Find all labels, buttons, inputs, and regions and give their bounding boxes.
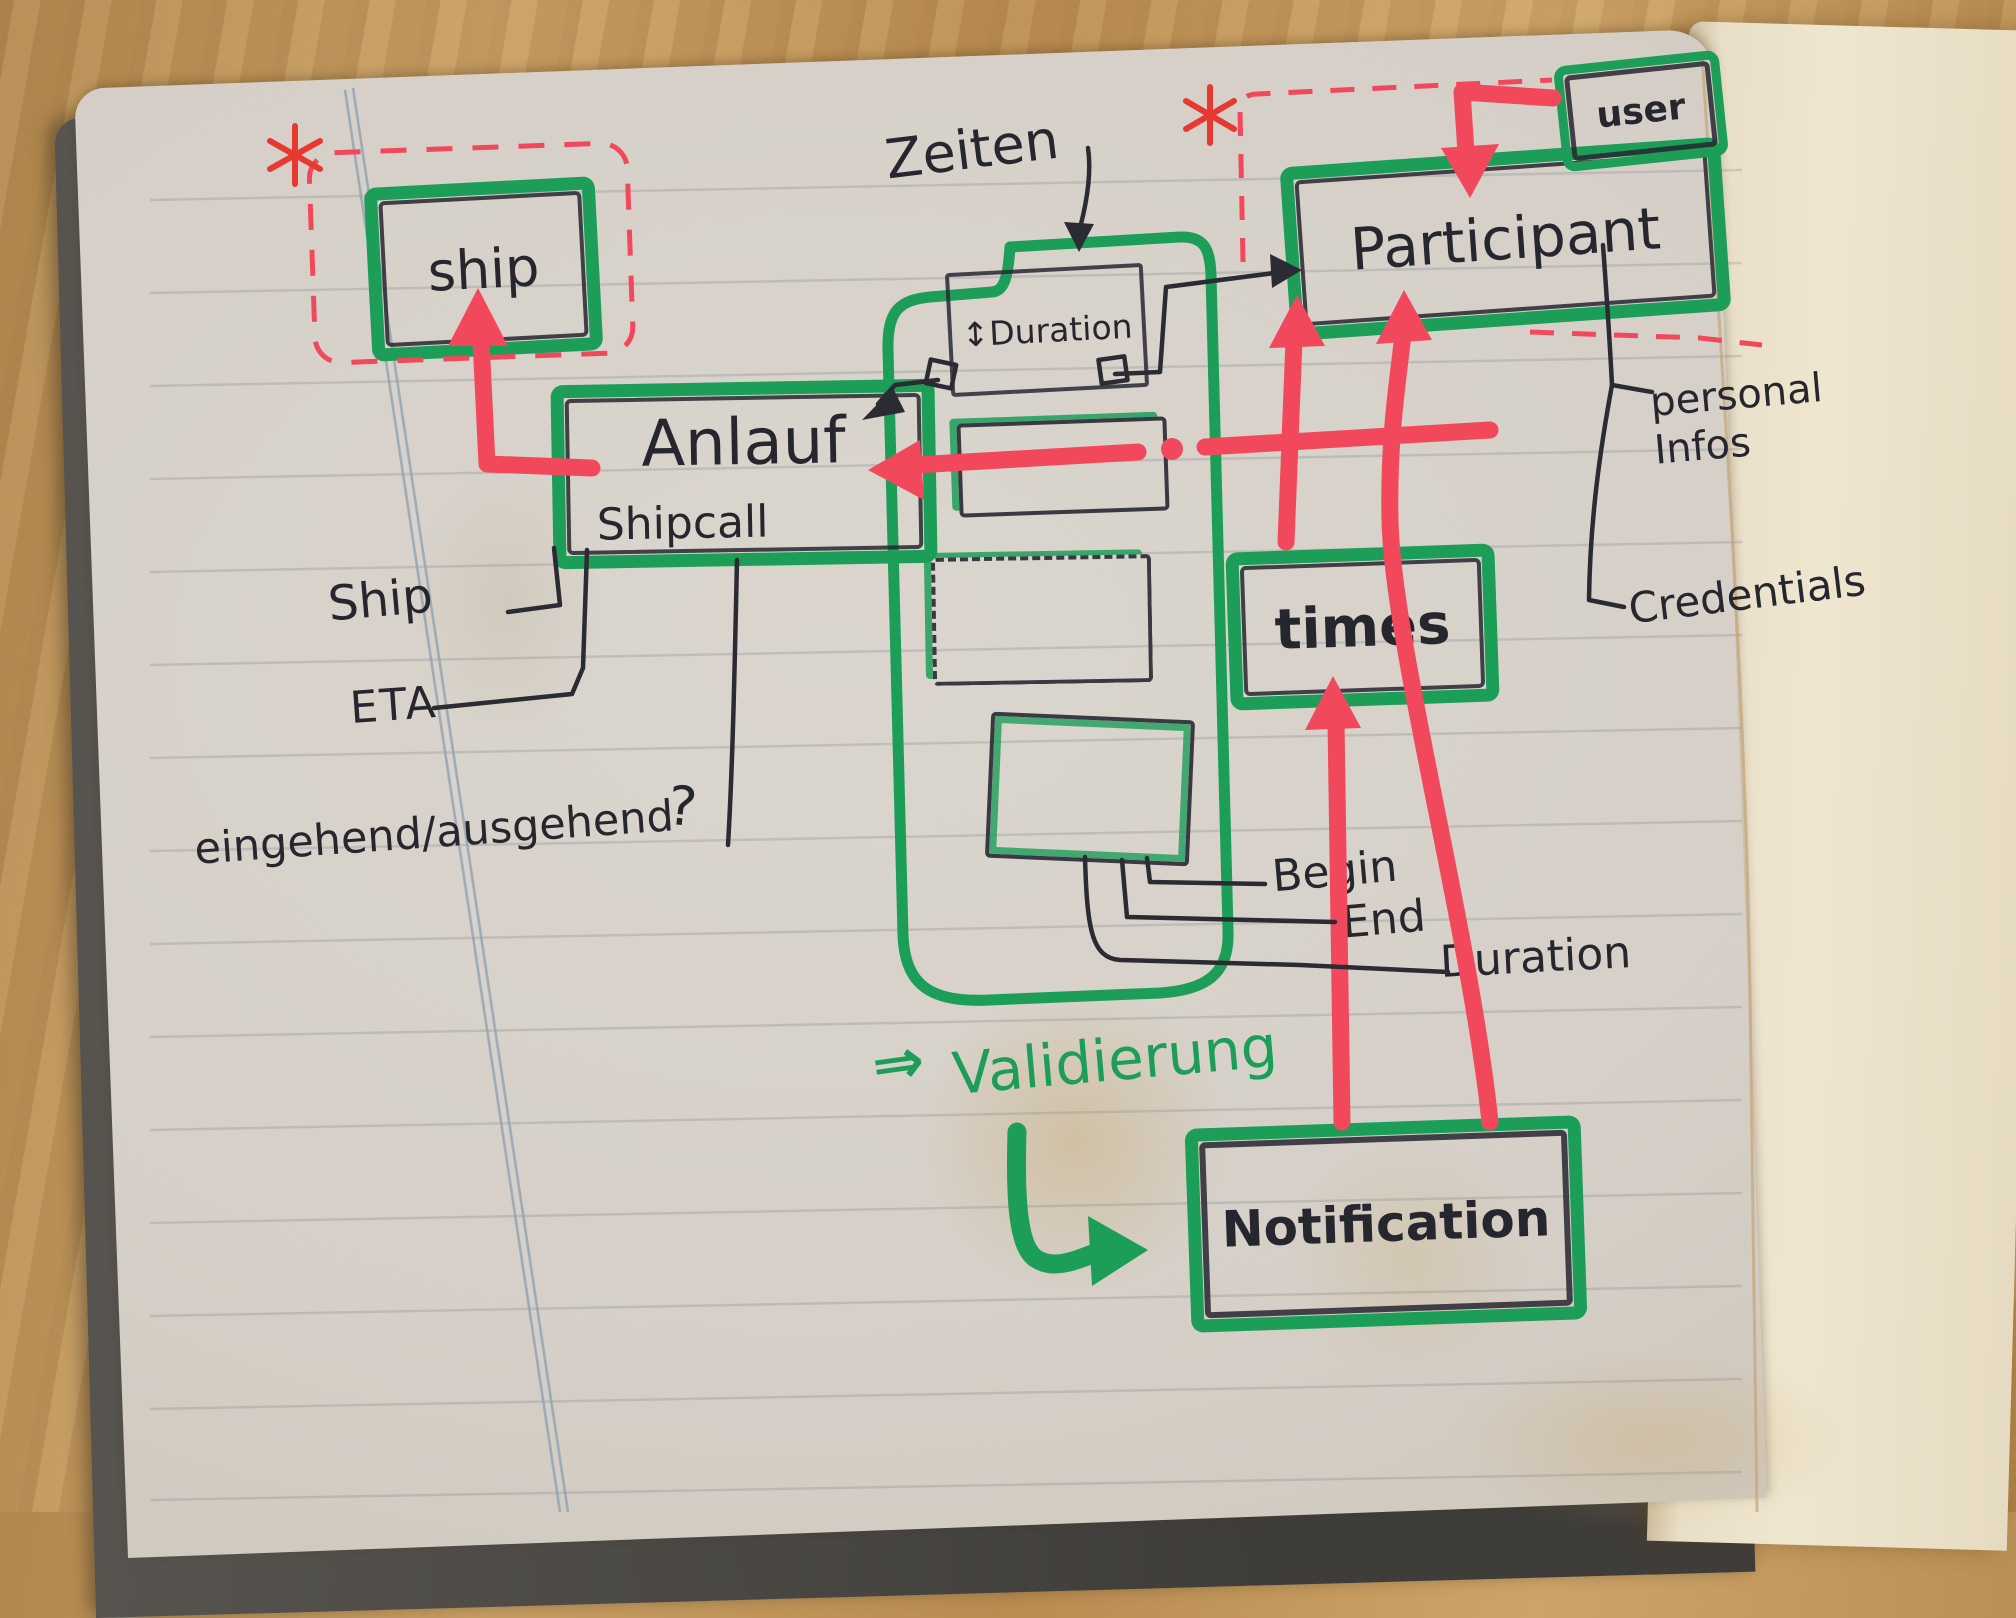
- empty-record-box-2: [931, 554, 1153, 686]
- anlauf-label: Anlauf: [641, 404, 847, 482]
- anlauf-box: Anlauf Shipcall: [550, 379, 937, 570]
- notification-box-label: Notification: [1199, 1130, 1573, 1319]
- empty-record-box-3: [985, 712, 1195, 867]
- empty-record-box-1: [956, 416, 1169, 517]
- times-box: times: [1225, 543, 1499, 710]
- duration-box-label: Duration: [988, 306, 1133, 352]
- desk-surface: ship Participant user Anlauf Shipcall ti…: [0, 0, 2016, 1512]
- notebook-photo: { "boxes": { "ship": { "label": "ship" }…: [0, 0, 2016, 1512]
- updown-arrow-icon: ↕: [961, 314, 991, 354]
- begin-label: Begin: [1270, 841, 1399, 903]
- ship-box: ship: [364, 176, 604, 362]
- anlauf-box-label: Anlauf Shipcall: [565, 393, 924, 555]
- duration-attribute-label: Duration: [1439, 927, 1633, 988]
- participant-box: Participant: [1279, 137, 1731, 341]
- end-label: End: [1340, 890, 1428, 948]
- participant-box-label: Participant: [1294, 152, 1716, 326]
- eta-label: ETA: [348, 677, 439, 734]
- personal-infos-label: personal Infos: [1648, 361, 1861, 475]
- notification-box: Notification: [1185, 1115, 1588, 1333]
- ship-box-label: ship: [378, 191, 588, 347]
- user-box-label: user: [1564, 61, 1718, 162]
- user-box: user: [1553, 50, 1729, 173]
- duration-box: ↕ Duration: [945, 263, 1149, 397]
- validierung-arrow-icon: ⇒: [867, 1023, 929, 1103]
- shipcall-label: Shipcall: [596, 497, 768, 551]
- ship-attribute-label: Ship: [326, 568, 435, 633]
- times-box-label: times: [1240, 558, 1485, 696]
